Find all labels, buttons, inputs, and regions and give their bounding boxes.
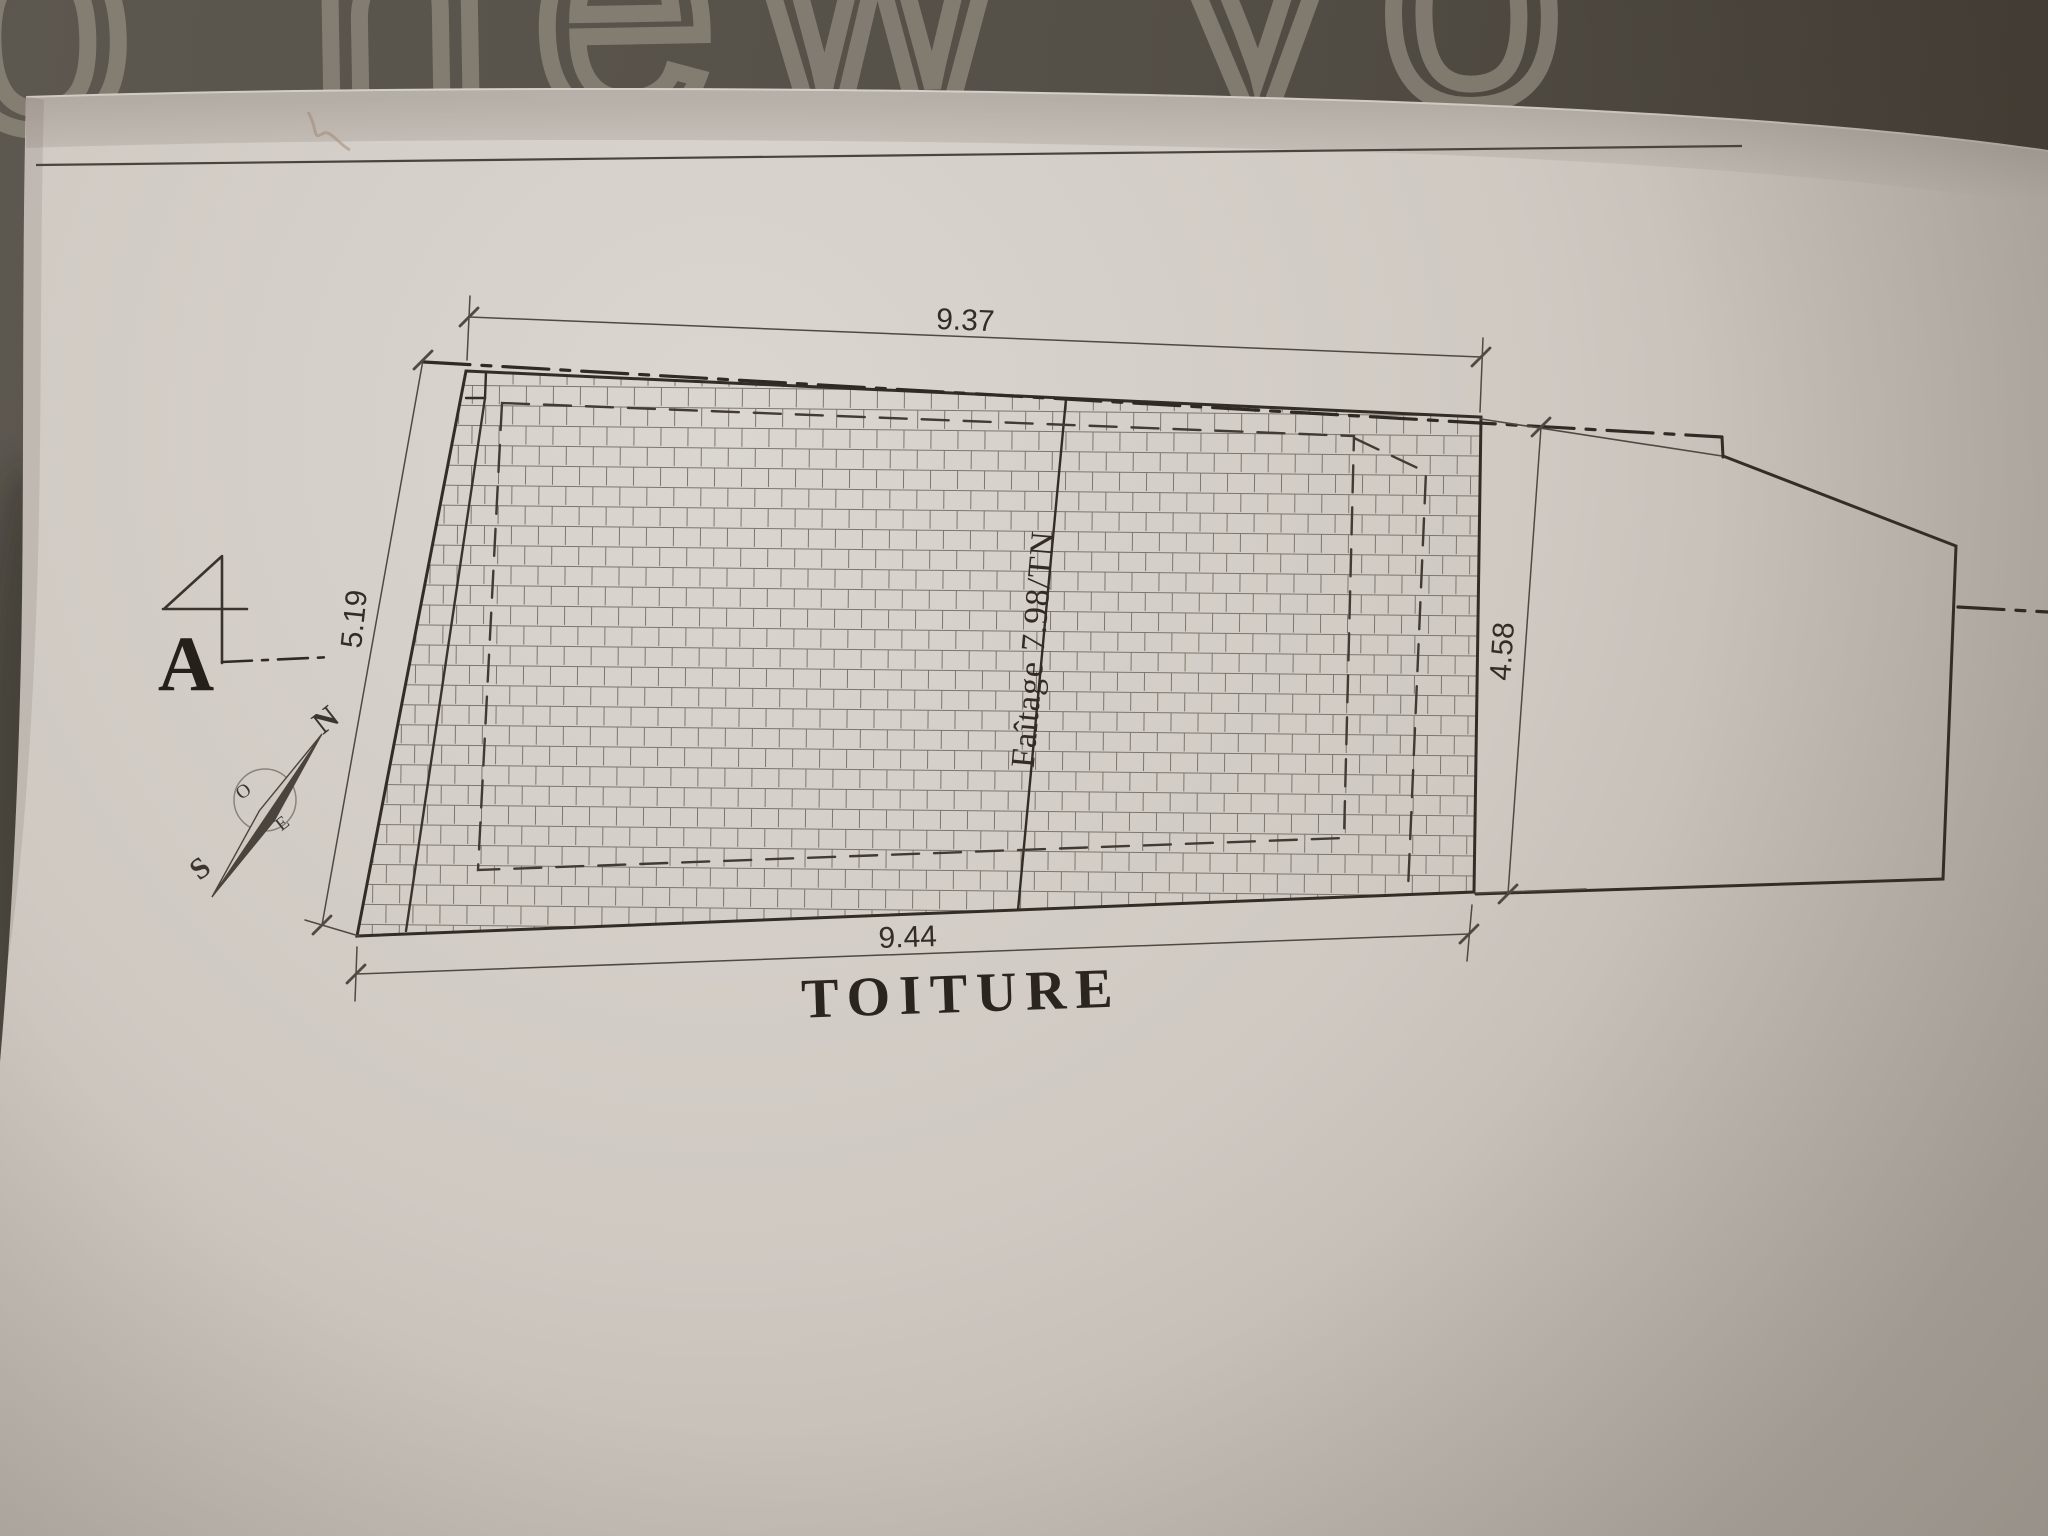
roof-tile-hatch	[330, 350, 1510, 960]
plan-title: TOITURE	[800, 957, 1122, 1030]
dim-bottom-label: 9.44	[878, 920, 938, 955]
dim-left-label: 5.19	[335, 588, 374, 650]
photo-of-roof-plan: o new yo	[0, 0, 2048, 1536]
dim-top-label: 9.37	[936, 303, 996, 338]
section-marker-label: A	[158, 620, 214, 707]
dim-right-label: 4.58	[1484, 621, 1521, 682]
